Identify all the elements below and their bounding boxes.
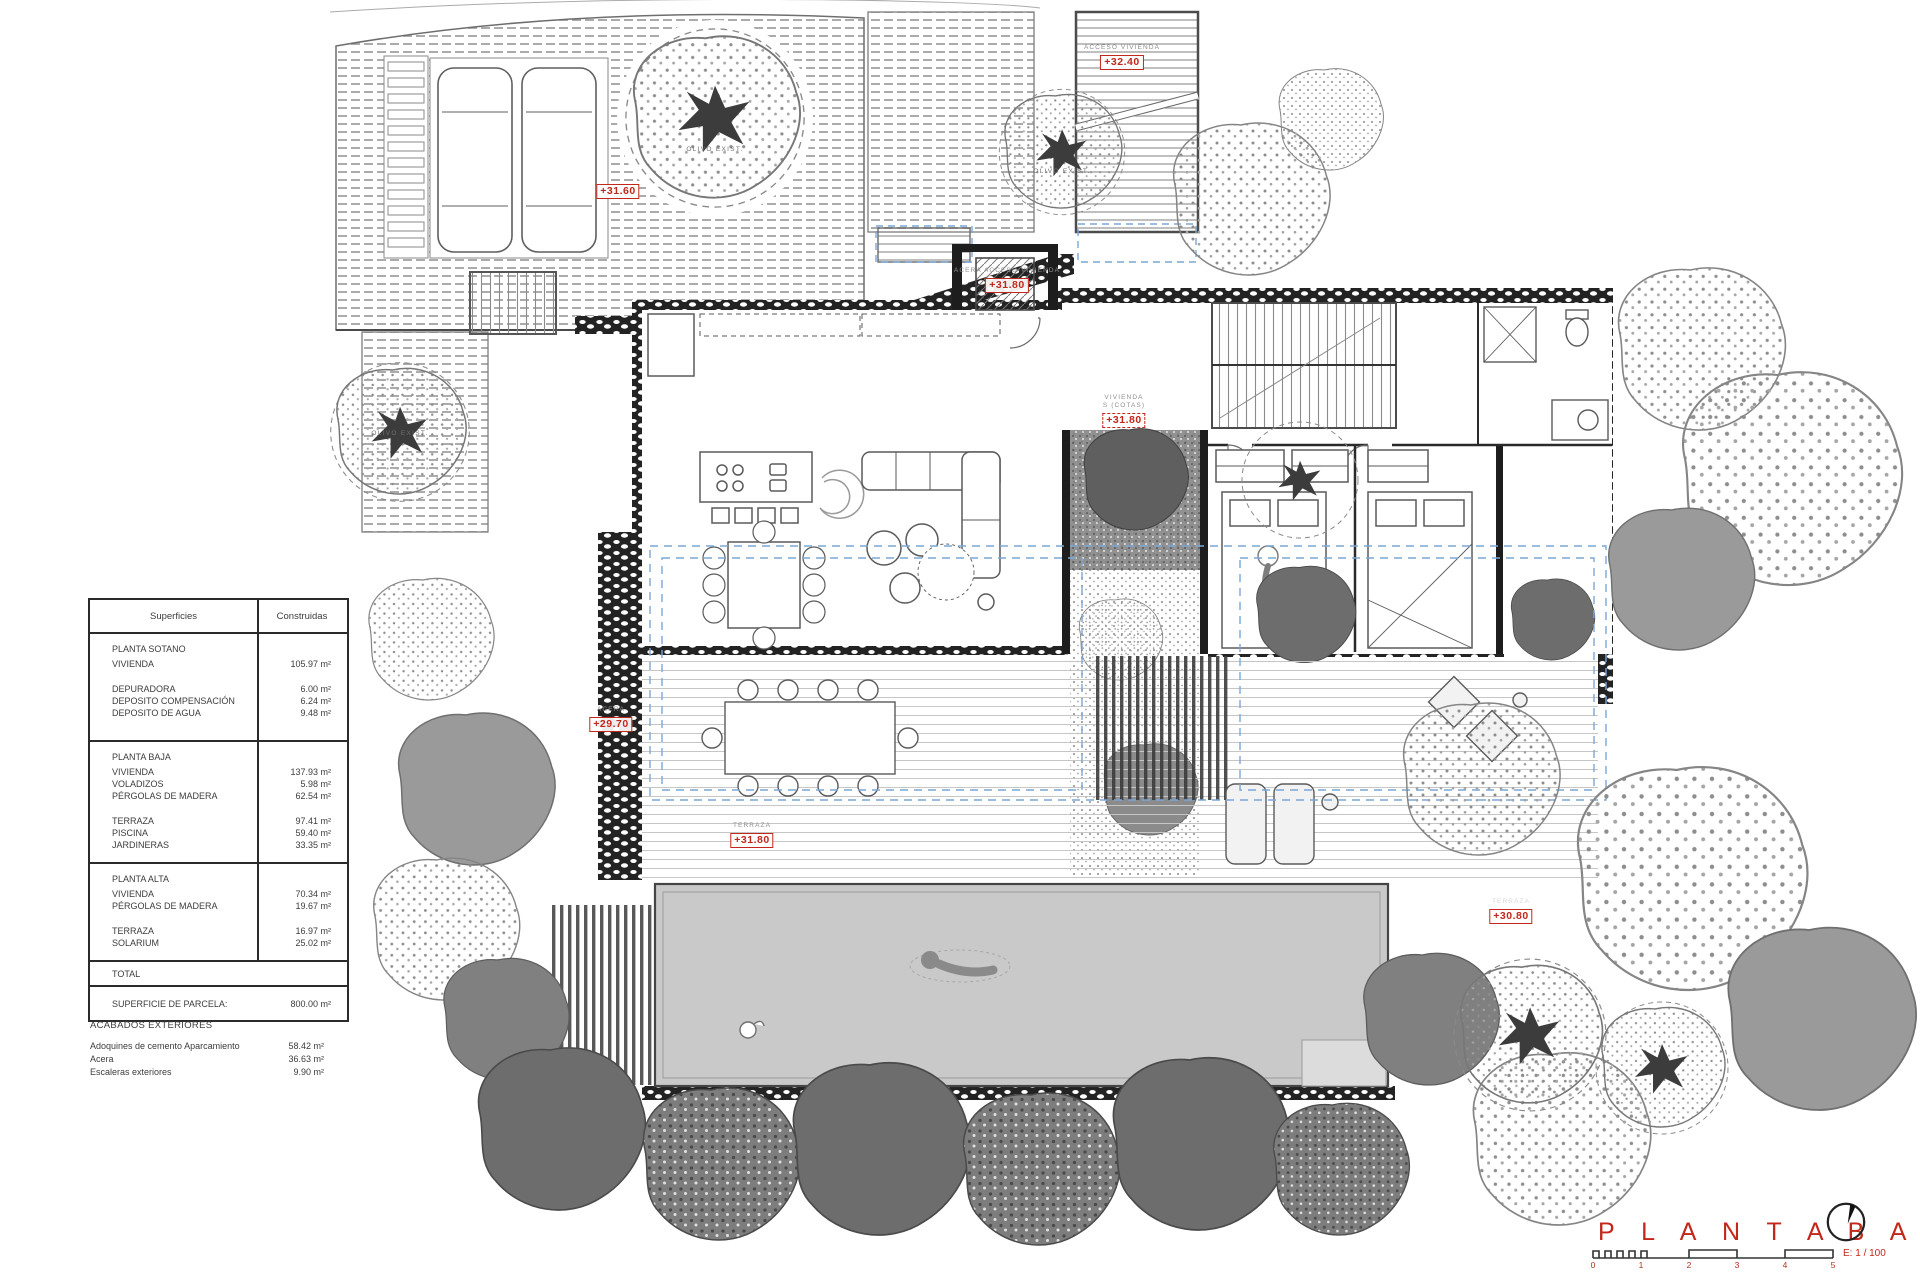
table-row: VOLADIZOS5.98 m²	[90, 778, 347, 790]
table-row: VIVIENDA105.97 m²	[90, 658, 347, 670]
table-column-divider	[257, 742, 259, 862]
level-label-vivienda: VIVIENDA S (COTAS) +31.80	[1102, 394, 1145, 428]
exterior-finishes-title: ACABADOS EXTERIORES	[90, 1020, 324, 1031]
north-arrow-icon	[1820, 1196, 1872, 1248]
exterior-stairs	[470, 272, 556, 334]
table-row: PÉRGOLAS DE MADERA19.67 m²	[90, 900, 347, 912]
list-item: Escaleras exteriores9.90 m²	[90, 1066, 324, 1079]
level-label-terraza-este: TERRAZA +30.80	[1489, 898, 1532, 924]
table-row: PISCINA59.40 m²	[90, 827, 347, 839]
exterior-finishes-list: ACABADOS EXTERIORES Adoquines de cemento…	[90, 1020, 324, 1079]
section-title: PLANTA ALTA	[90, 873, 347, 885]
olive-tree-label: OLIVO EXIST.	[371, 430, 428, 437]
list-item: Acera36.63 m²	[90, 1053, 324, 1066]
pool-area	[552, 884, 1388, 1086]
interior-stairs	[1212, 303, 1396, 428]
section-planta-alta: PLANTA ALTA VIVIENDA70.34 m² PÉRGOLAS DE…	[90, 864, 347, 962]
col-construidas: Construidas	[257, 611, 347, 622]
table-row: TERRAZA97.41 m²	[90, 815, 347, 827]
table-row: VIVIENDA137.93 m²	[90, 766, 347, 778]
parcela-row: SUPERFICIE DE PARCELA: 800.00 m²	[90, 987, 347, 1020]
table-row: JARDINERAS33.35 m²	[90, 839, 347, 851]
level-label-acera-oeste: ACERA +29.70	[589, 706, 632, 732]
table-row: TERRAZA16.97 m²	[90, 925, 347, 937]
scale-bar	[1585, 1242, 1837, 1262]
table-row: DEPURADORA6.00 m²	[90, 683, 347, 695]
table-row: SOLARIUM25.02 m²	[90, 937, 347, 949]
section-planta-baja: PLANTA BAJA VIVIENDA137.93 m² VOLADIZOS5…	[90, 742, 347, 864]
floor-plan-sheet: Superficies Construidas PLANTA SOTANO VI…	[0, 0, 1920, 1280]
olive-tree-label: OLIVO EXIST.	[1033, 168, 1090, 175]
scale-label: E: 1 / 100	[1843, 1248, 1886, 1259]
wood-slat-deck	[1092, 656, 1232, 800]
parked-car	[522, 68, 596, 252]
surfaces-table: Superficies Construidas PLANTA SOTANO VI…	[88, 598, 349, 1022]
surfaces-table-header: Superficies Construidas	[90, 600, 347, 634]
olive-tree-label: OLIVO EXIST.	[686, 146, 743, 153]
table-column-divider	[257, 864, 259, 960]
table-row: DEPOSITO DE AGUA9.48 m²	[90, 707, 347, 719]
table-row: DEPOSITO COMPENSACIÓN6.24 m²	[90, 695, 347, 707]
table-row: VIVIENDA70.34 m²	[90, 888, 347, 900]
section-title: PLANTA BAJA	[90, 751, 347, 763]
section-planta-sotano: PLANTA SOTANO VIVIENDA105.97 m² DEPURADO…	[90, 634, 347, 742]
section-title: PLANTA SOTANO	[90, 643, 347, 655]
total-row: TOTAL	[90, 962, 347, 987]
scale-bar-ticks: 0 1 2 3 4 5	[1585, 1260, 1837, 1272]
level-label-acera-acceso: ACERA ACCESO VIVIENDA +31.80	[954, 267, 1060, 293]
table-column-divider	[257, 600, 259, 632]
parcel-boundary-line	[330, 0, 1040, 12]
level-label-terraza: TERRAZA +31.80	[730, 822, 773, 848]
level-label-access: ACCESO VIVIENDA +32.40	[1084, 44, 1160, 70]
parked-car	[438, 68, 512, 252]
list-item: Adoquines de cemento Aparcamiento58.42 m…	[90, 1040, 324, 1053]
col-superficies: Superficies	[90, 611, 257, 622]
level-label-garage: +31.60	[596, 181, 639, 199]
table-row: PÉRGOLAS DE MADERA62.54 m²	[90, 790, 347, 802]
table-column-divider	[257, 634, 259, 740]
